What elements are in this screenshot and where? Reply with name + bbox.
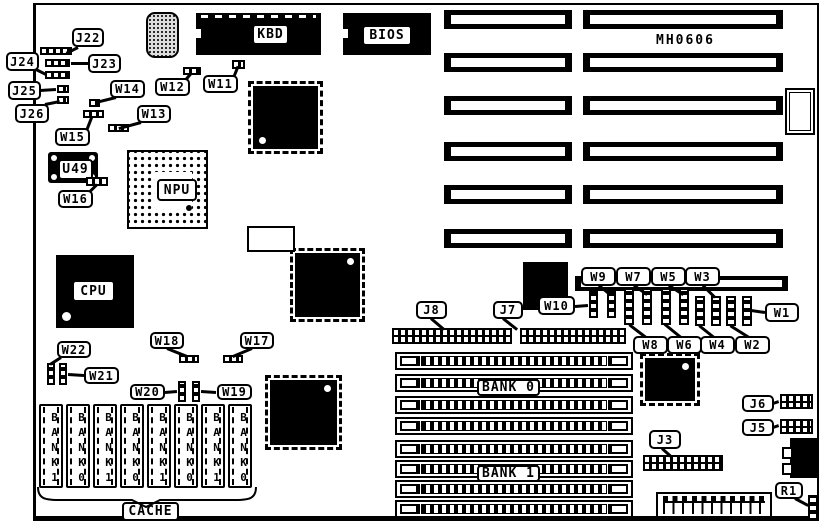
- chip-qfp-d: [645, 358, 695, 401]
- callout-w8: W8: [633, 336, 668, 354]
- simm-socket: [395, 500, 633, 518]
- callout-tail-j23: [71, 62, 88, 65]
- socket-seam: [201, 15, 316, 18]
- simm-latch: [608, 378, 628, 388]
- header-j3: [643, 455, 723, 471]
- simm-latch: [608, 421, 628, 431]
- slot-slit: [451, 147, 565, 156]
- callout-tail-w1: [751, 309, 765, 314]
- simm-latch: [608, 464, 628, 474]
- jumper-w20: [178, 381, 186, 402]
- simm-latch: [608, 400, 628, 410]
- callout-tail-w10: [575, 304, 588, 308]
- cache-socket-label: BANK1: [203, 410, 223, 486]
- isa-slot-1-right: [583, 10, 783, 29]
- jumper-w15: [83, 110, 104, 118]
- callout-w16: W16: [58, 190, 93, 208]
- header-j8: [392, 328, 512, 344]
- slot-slit: [590, 234, 776, 243]
- isa-slot-1-left: [444, 10, 572, 29]
- isa-slot-4-left: [444, 142, 572, 161]
- cache-socket-label: BANK1: [149, 410, 169, 486]
- cache-socket-label: BANK0: [230, 410, 250, 486]
- mount-hole: [51, 155, 57, 161]
- slot-slit: [451, 234, 565, 243]
- empty-socket: [247, 226, 295, 252]
- isa-slot-5-left: [444, 185, 572, 204]
- isa-slot-3-left: [444, 96, 572, 115]
- callout-w18: W18: [150, 332, 184, 349]
- chip-label-cpu: CPU: [72, 280, 115, 302]
- jumper-w22: [47, 363, 55, 385]
- cache-socket-label: BANK0: [68, 410, 88, 486]
- pin1-dot: [324, 385, 331, 392]
- slot-slit: [590, 58, 776, 67]
- isa-slot-5-right: [583, 185, 783, 204]
- callout-w3: W3: [685, 267, 720, 286]
- power-connector: [656, 492, 772, 518]
- simm-contacts: [421, 421, 607, 431]
- callout-j5: J5: [742, 419, 774, 436]
- slot-slit: [590, 190, 776, 199]
- pin1-dot: [259, 137, 266, 144]
- cache-socket-bank1: BANK1: [201, 404, 225, 488]
- jumper-w3: [711, 296, 721, 326]
- label-bank-0: BANK 0: [477, 379, 540, 396]
- jumper-j25: [57, 85, 69, 93]
- callout-w15: W15: [55, 128, 90, 146]
- callout-w1: W1: [765, 303, 799, 322]
- isa-slot-2-left: [444, 53, 572, 72]
- header-j7: [520, 328, 626, 344]
- chip-bios: BIOS: [343, 13, 431, 55]
- slot-slit: [590, 101, 776, 110]
- slot-slit: [451, 190, 565, 199]
- jumper-w21: [59, 363, 67, 385]
- simm-latch: [400, 444, 420, 454]
- callout-w22: W22: [57, 341, 91, 358]
- npu-socket: NPU: [127, 150, 208, 229]
- diagram-layers: KBDBIOSCPUNPUU49BANK1BANK0BANK1BANK0BANK…: [0, 0, 822, 528]
- keyboard-connector: [785, 88, 815, 135]
- callout-j7: J7: [493, 301, 523, 319]
- simm-socket: [395, 352, 633, 370]
- simm-latch: [608, 444, 628, 454]
- callout-r1: R1: [775, 482, 803, 499]
- simm-latch: [400, 378, 420, 388]
- chip-qfp-a: [253, 86, 318, 149]
- simm-contacts: [421, 356, 607, 366]
- header-j24: [45, 71, 70, 79]
- motherboard-layout-diagram: KBDBIOSCPUNPUU49BANK1BANK0BANK1BANK0BANK…: [0, 0, 822, 528]
- jumper-w8: [624, 288, 634, 325]
- jumper-w4: [695, 296, 705, 326]
- mount-hole: [51, 174, 57, 180]
- callout-j24: J24: [6, 52, 39, 71]
- jumper-w10: [589, 291, 598, 318]
- simm-socket: [395, 440, 633, 458]
- cache-socket-label: BANK0: [122, 410, 142, 486]
- callout-j3: J3: [649, 430, 681, 449]
- isa-slot-2-right: [583, 53, 783, 72]
- simm-latch: [400, 400, 420, 410]
- label-bank-1: BANK 1: [477, 465, 540, 482]
- simm-socket: [395, 396, 633, 414]
- isa-slot-3-right: [583, 96, 783, 115]
- simm-contacts: [421, 504, 607, 514]
- callout-j26: J26: [15, 104, 49, 123]
- board-id-text: MH0606: [656, 33, 715, 48]
- simm-contacts: [421, 400, 607, 410]
- callout-w20: W20: [130, 384, 165, 400]
- callout-w19: W19: [217, 384, 252, 400]
- cache-socket-bank0: BANK0: [120, 404, 144, 488]
- cache-brace: [36, 485, 258, 509]
- callout-w11: W11: [203, 75, 238, 93]
- at-power-connector: [790, 438, 818, 478]
- pin1-notch: [196, 29, 201, 38]
- callout-w4: W4: [700, 336, 735, 354]
- simm-latch: [400, 421, 420, 431]
- header-j6: [780, 394, 813, 409]
- pin1-notch: [343, 29, 348, 38]
- slot-slit: [451, 15, 565, 24]
- callout-j25: J25: [8, 81, 41, 100]
- simm-socket: [395, 417, 633, 435]
- callout-tail-j25: [40, 88, 56, 92]
- header-j5: [780, 419, 813, 434]
- cache-socket-bank1: BANK1: [147, 404, 171, 488]
- chip-label-kbd: KBD: [252, 24, 289, 45]
- simm-latch: [400, 356, 420, 366]
- slot-slit: [451, 101, 565, 110]
- chip-label-npu: NPU: [157, 179, 197, 201]
- callout-j23: J23: [88, 54, 121, 73]
- isa-slot-4-right: [583, 142, 783, 161]
- callout-w6: W6: [667, 336, 702, 354]
- cache-socket-label: BANK1: [41, 410, 61, 486]
- slot-slit: [590, 147, 776, 156]
- callout-w10: W10: [538, 296, 575, 315]
- cache-socket-bank0: BANK0: [228, 404, 252, 488]
- simm-latch: [400, 464, 420, 474]
- callout-w21: W21: [84, 367, 119, 384]
- chip-cpu: CPU: [56, 255, 134, 328]
- callout-w7: W7: [616, 267, 651, 286]
- resistor-r1: [808, 495, 818, 520]
- cache-socket-label: BANK1: [95, 410, 115, 486]
- chip-label-bios: BIOS: [362, 25, 412, 46]
- pin1-dot: [347, 258, 354, 265]
- cache-socket-bank0: BANK0: [174, 404, 198, 488]
- simm-contacts: [421, 484, 607, 494]
- simm-contacts: [421, 444, 607, 454]
- callout-j22: J22: [72, 28, 104, 47]
- power-tab: [782, 447, 793, 459]
- simm-latch: [608, 484, 628, 494]
- callout-w17: W17: [240, 332, 274, 349]
- jumper-w2: [726, 296, 736, 326]
- simm-latch: [400, 484, 420, 494]
- cache-socket-bank1: BANK1: [39, 404, 63, 488]
- isa-slot-6-right: [583, 229, 783, 248]
- isa-slot-6-left: [444, 229, 572, 248]
- crystal-component: [146, 12, 179, 58]
- header-j23: [45, 59, 70, 67]
- simm-latch: [608, 504, 628, 514]
- slot-slit: [590, 15, 776, 24]
- callout-j8: J8: [416, 301, 447, 319]
- callout-j6: J6: [742, 395, 774, 412]
- npu-pin1-dot: [186, 205, 192, 211]
- callout-w2: W2: [735, 336, 770, 354]
- cache-socket-label: BANK0: [176, 410, 196, 486]
- callout-w9: W9: [581, 267, 616, 286]
- callout-w5: W5: [651, 267, 686, 286]
- callout-tail-w21: [68, 373, 84, 377]
- chip-qfp-b: [295, 253, 360, 317]
- jumper-w19: [192, 381, 200, 402]
- slot-slit: [451, 58, 565, 67]
- simm-latch: [400, 504, 420, 514]
- cache-socket-bank1: BANK1: [93, 404, 117, 488]
- callout-tail-w19: [201, 390, 216, 394]
- jumper-w6: [661, 288, 671, 325]
- callout-w14: W14: [110, 80, 145, 98]
- callout-w13: W13: [137, 105, 171, 123]
- chip-kbd: KBD: [196, 13, 321, 55]
- pin1-dot: [62, 312, 71, 321]
- cache-socket-bank0: BANK0: [66, 404, 90, 488]
- simm-socket: [395, 480, 633, 498]
- pin1-dot: [682, 363, 689, 370]
- simm-latch: [608, 356, 628, 366]
- callout-w12: W12: [155, 78, 190, 96]
- power-tab: [782, 463, 793, 475]
- chip-qfp-c: [270, 380, 337, 445]
- callout-tail-w20: [165, 390, 177, 394]
